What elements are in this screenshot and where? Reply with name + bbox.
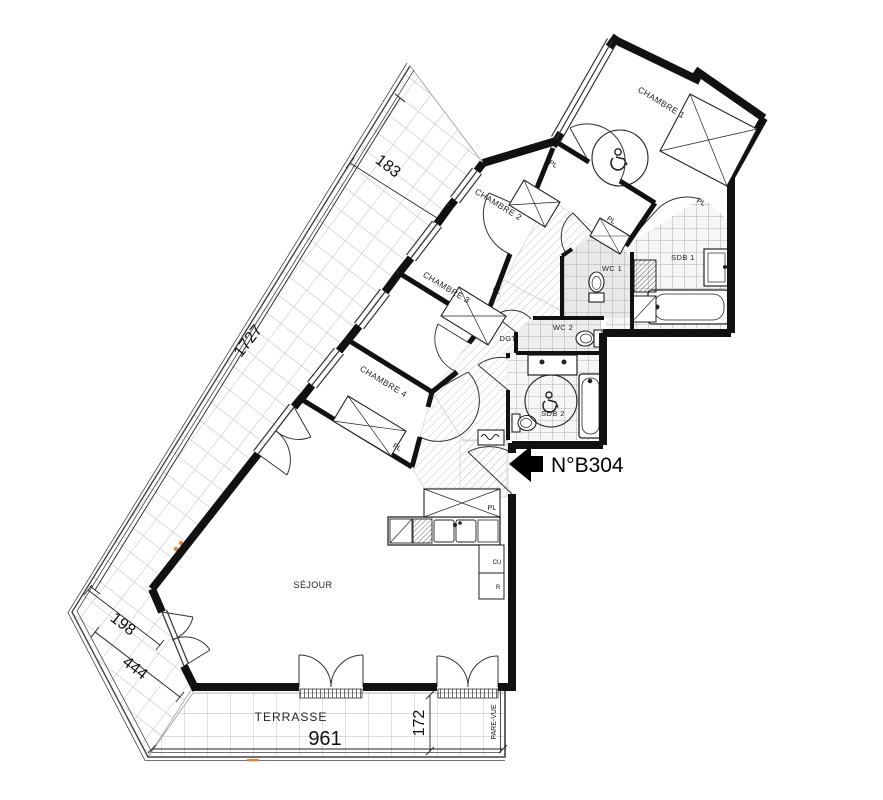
french-door-arc — [299, 655, 363, 687]
room-label-chambre4: CHAMBRE 4 — [358, 363, 409, 399]
bathtub-icon — [579, 374, 602, 438]
bathtub-icon — [648, 290, 729, 324]
kitchen-counter — [388, 517, 500, 545]
door-arc — [570, 124, 625, 181]
accessible-turning-circle-icon — [592, 130, 648, 186]
room-label-chambre1: CHAMBRE 1 — [636, 84, 687, 120]
fridge-box — [479, 573, 504, 599]
balcony — [72, 66, 483, 757]
toilet-icon — [512, 414, 536, 432]
room-label-sdb2: SDB 2 — [541, 409, 565, 418]
sink-icon — [704, 249, 729, 286]
window-chambre1 — [552, 39, 617, 142]
radiator-icon — [478, 430, 504, 445]
room-label-dgt: DGT — [499, 334, 516, 343]
toilet-icon — [576, 330, 602, 347]
fridge-label: R — [496, 585, 501, 591]
room-label-wc2: WC 2 — [553, 323, 573, 332]
closet-label: PL — [488, 505, 497, 512]
unit-number-label: N°B304 — [551, 454, 624, 477]
floor-plan-page: CHAMBRE 1 CHAMBRE 2 CHAMBRE 3 CHAMBRE 4 … — [0, 0, 883, 800]
room-label-sejour: SÉJOUR — [294, 580, 333, 590]
floor-plan-svg: CHAMBRE 1 CHAMBRE 2 CHAMBRE 3 CHAMBRE 4 … — [0, 0, 883, 800]
balcony-floor — [72, 66, 483, 757]
room-label-sdb1: SDB 1 — [671, 253, 695, 262]
kitchen-unit-box — [479, 545, 504, 573]
closet-label: PL — [547, 160, 558, 170]
room-label-wc1: WC 1 — [602, 264, 622, 273]
vanity-cabinet — [634, 260, 656, 292]
kitchen-unit-label: CU — [493, 560, 502, 566]
dishwasher — [413, 519, 432, 543]
french-door-arc — [437, 656, 498, 687]
pare-vue-label: PARE-VUE — [491, 704, 498, 740]
double-sink-icon — [528, 355, 577, 375]
room-label-terrasse: TERRASSE — [255, 710, 328, 724]
toilet-icon — [589, 272, 604, 302]
dim-label-961: 961 — [308, 728, 341, 750]
closet-sejour — [424, 489, 500, 517]
dim-label-172: 172 — [411, 710, 428, 737]
